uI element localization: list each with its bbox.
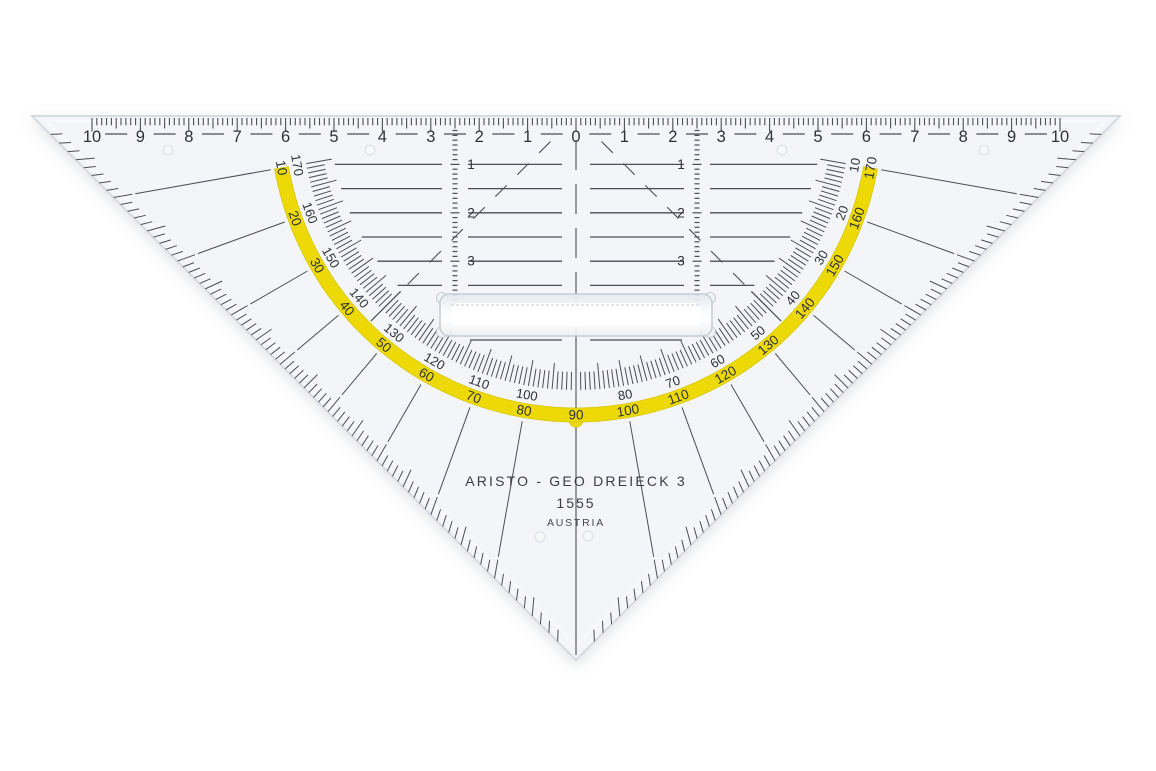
svg-text:8: 8 (959, 128, 968, 146)
svg-text:5: 5 (329, 128, 338, 146)
svg-text:2: 2 (668, 128, 677, 146)
svg-text:80: 80 (617, 386, 634, 403)
svg-text:2: 2 (677, 205, 685, 220)
brand-text: ARISTO - GEO DREIECK 3 (465, 473, 687, 489)
svg-text:1: 1 (677, 157, 685, 172)
svg-text:7: 7 (233, 128, 242, 146)
svg-text:1: 1 (620, 128, 629, 146)
svg-text:10: 10 (1051, 128, 1069, 146)
svg-text:2: 2 (467, 205, 475, 220)
svg-text:6: 6 (281, 128, 290, 146)
svg-text:1: 1 (467, 157, 475, 172)
svg-text:9: 9 (1007, 128, 1016, 146)
svg-text:3: 3 (426, 128, 435, 146)
model-number: 1555 (556, 495, 595, 511)
svg-text:5: 5 (813, 128, 822, 146)
svg-text:10: 10 (273, 159, 290, 176)
svg-text:3: 3 (677, 254, 685, 269)
svg-text:3: 3 (467, 254, 475, 269)
svg-text:1: 1 (523, 128, 532, 146)
svg-text:4: 4 (765, 128, 774, 146)
svg-text:80: 80 (515, 402, 532, 419)
svg-text:10: 10 (83, 128, 101, 146)
svg-text:90: 90 (568, 408, 583, 423)
svg-text:4: 4 (378, 128, 387, 146)
country-text: AUSTRIA (547, 517, 605, 529)
svg-text:7: 7 (910, 128, 919, 146)
svg-text:3: 3 (717, 128, 726, 146)
product-photo: 1098765432101234567891012312310203040506… (0, 0, 1156, 771)
svg-text:9: 9 (136, 128, 145, 146)
svg-text:2: 2 (475, 128, 484, 146)
geo-triangle-set-square: 1098765432101234567891012312310203040506… (0, 0, 1156, 771)
svg-text:6: 6 (862, 128, 871, 146)
svg-text:8: 8 (184, 128, 193, 146)
handle (437, 293, 716, 338)
svg-text:10: 10 (846, 157, 863, 174)
